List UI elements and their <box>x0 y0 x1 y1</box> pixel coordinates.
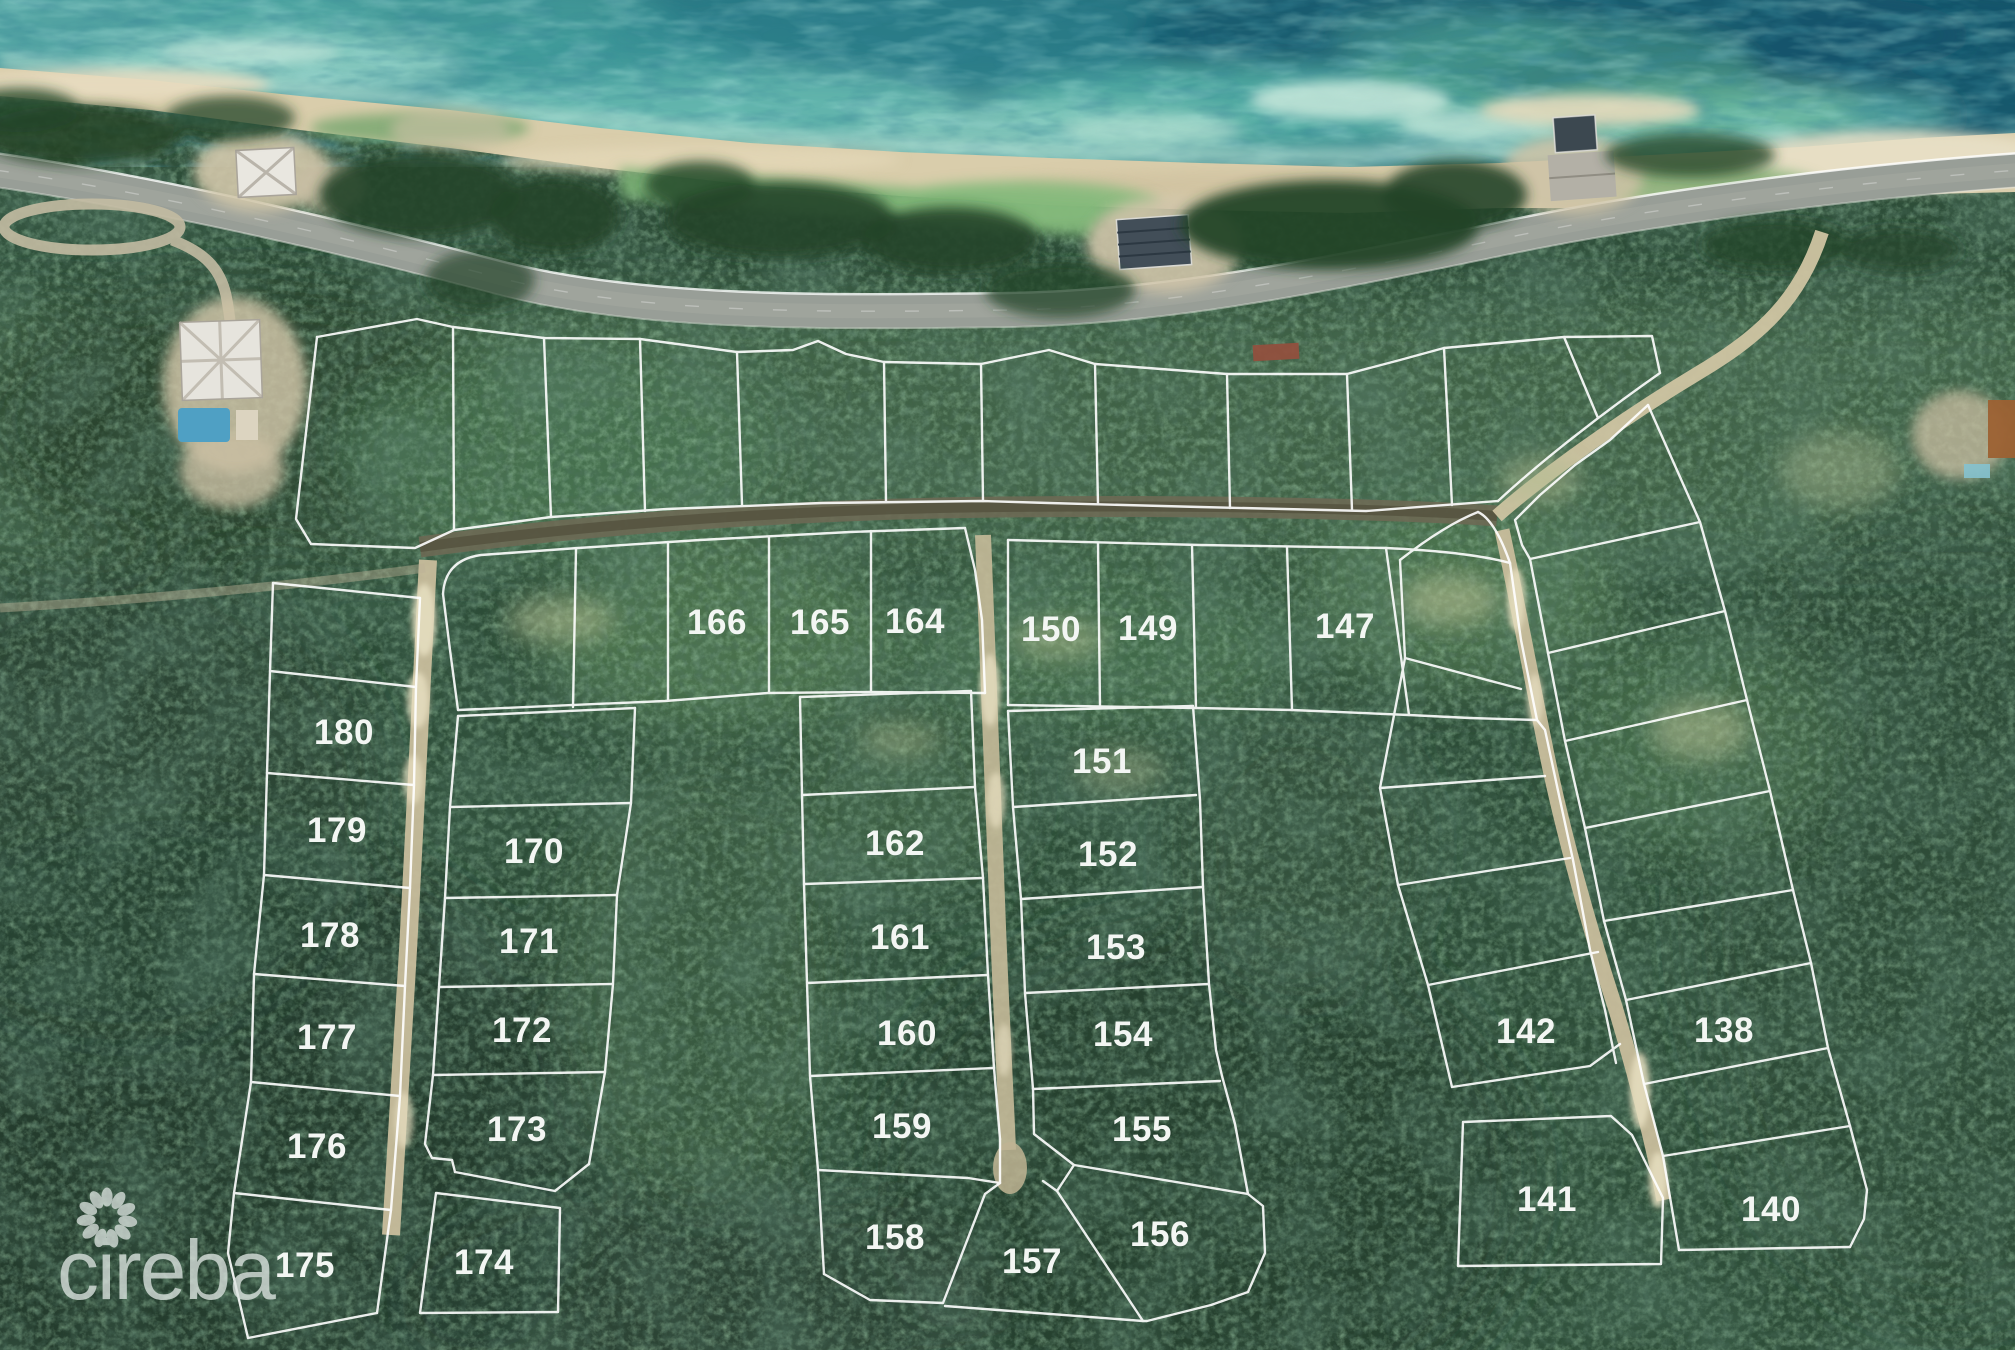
svg-text:178: 178 <box>300 916 360 955</box>
svg-text:157: 157 <box>1002 1242 1062 1281</box>
svg-text:150: 150 <box>1021 610 1081 649</box>
svg-text:175: 175 <box>275 1246 335 1285</box>
svg-text:151: 151 <box>1072 742 1132 781</box>
svg-text:162: 162 <box>865 824 925 863</box>
svg-text:149: 149 <box>1118 609 1178 648</box>
svg-text:180: 180 <box>314 713 374 752</box>
svg-text:170: 170 <box>504 832 564 871</box>
svg-text:140: 140 <box>1741 1190 1801 1229</box>
svg-text:152: 152 <box>1078 835 1138 874</box>
svg-text:156: 156 <box>1130 1215 1190 1254</box>
svg-text:154: 154 <box>1093 1015 1153 1054</box>
svg-text:160: 160 <box>877 1014 937 1053</box>
svg-text:153: 153 <box>1086 928 1146 967</box>
svg-text:138: 138 <box>1694 1011 1754 1050</box>
svg-text:171: 171 <box>499 922 559 961</box>
svg-text:155: 155 <box>1112 1110 1172 1149</box>
svg-text:176: 176 <box>287 1127 347 1166</box>
svg-text:142: 142 <box>1496 1012 1556 1051</box>
svg-text:179: 179 <box>307 811 367 850</box>
svg-text:172: 172 <box>492 1011 552 1050</box>
svg-text:173: 173 <box>487 1110 547 1149</box>
svg-text:159: 159 <box>872 1107 932 1146</box>
svg-text:177: 177 <box>297 1018 357 1057</box>
svg-text:165: 165 <box>790 603 850 642</box>
svg-text:166: 166 <box>687 603 747 642</box>
svg-text:cireba: cireba <box>57 1223 276 1317</box>
svg-text:174: 174 <box>454 1243 514 1282</box>
svg-text:158: 158 <box>865 1218 925 1257</box>
svg-text:141: 141 <box>1517 1180 1577 1219</box>
svg-text:147: 147 <box>1315 607 1375 646</box>
svg-text:164: 164 <box>885 602 945 641</box>
svg-text:161: 161 <box>870 918 930 957</box>
